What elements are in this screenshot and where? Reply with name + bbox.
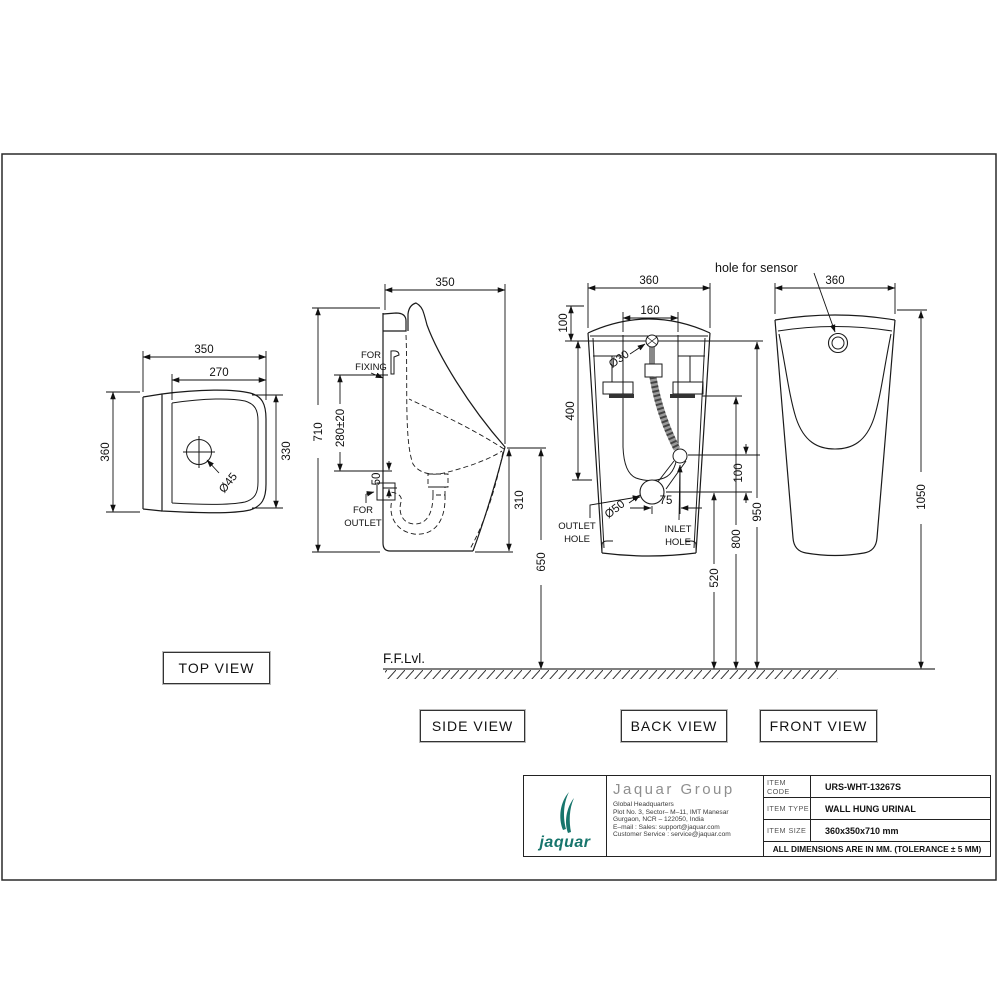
dim-back-sensor-hole: Ø30 (607, 348, 632, 370)
table-row: ITEM TYPE WALL HUNG URINAL (764, 798, 990, 820)
back-crown (588, 319, 710, 333)
left-bracket (603, 382, 633, 394)
side-hidden-lines (388, 335, 504, 549)
left-bracket-pad (609, 394, 634, 398)
address-line: Global Headquarters (613, 801, 763, 809)
front-top-edge (775, 315, 895, 320)
fixing-hook (391, 351, 399, 374)
company-name: Jaquar Group (613, 781, 763, 798)
back-view-label-text: BACK VIEW (631, 718, 718, 734)
jaquar-logo-wordmark: jaquar (539, 834, 590, 852)
note-inlet-hole-1: INLET (665, 524, 692, 535)
dim-front-width: 360 (825, 275, 844, 287)
item-info-table: ITEM CODE URS-WHT-13267S ITEM TYPE WALL … (764, 776, 990, 856)
back-view-label: BACK VIEW (621, 710, 727, 742)
dim-top-width: 350 (194, 344, 213, 356)
note-inlet-hole-2: HOLE (665, 537, 691, 548)
dim-back-crown-offset: 100 (558, 313, 570, 332)
item-code-label: ITEM CODE (764, 776, 811, 797)
dim-back-outlet-hole: Ø50 (603, 498, 628, 521)
front-view-dimensions (775, 273, 927, 669)
title-block: jaquar Jaquar Group Global Headquarters … (523, 775, 991, 857)
side-profile (408, 303, 505, 551)
front-view-label: FRONT VIEW (760, 710, 877, 742)
front-bowl-rim (779, 334, 891, 449)
dim-top-inner-width: 270 (209, 367, 228, 379)
address-line: Plot No. 3, Sector– M–11, IMT Manesar (613, 809, 763, 817)
item-type-value: WALL HUNG URINAL (811, 798, 990, 819)
side-view-dimensions (312, 284, 546, 669)
side-view-label-text: SIDE VIEW (432, 718, 513, 734)
note-for-outlet-1: FOR (353, 505, 373, 516)
drawing-sheet: 350 270 360 330 Ø45 (0, 0, 1000, 1000)
dim-back-outlet-height: 520 (709, 568, 721, 587)
top-view-label-text: TOP VIEW (179, 660, 255, 676)
dim-side-fixing-drop: 280±20 (335, 409, 347, 447)
item-size-label: ITEM SIZE (764, 820, 811, 841)
floor-line: F.F.Lvl. (383, 651, 935, 679)
right-bracket-pad (670, 394, 695, 398)
dim-back-bracket-height: 800 (731, 529, 743, 548)
dim-side-outlet-drop: 50 (371, 473, 383, 486)
side-wall-and-bottom (383, 313, 473, 551)
back-bottom (602, 553, 696, 556)
top-view (143, 390, 266, 513)
dim-top-inner-depth: 330 (281, 441, 293, 460)
address-line: Customer Service : service@jaquar.com (613, 831, 763, 839)
dim-side-rim-depth: 310 (514, 490, 526, 509)
brand-logo-cell: jaquar (524, 776, 607, 856)
sensor-hole-front-inner (832, 337, 844, 349)
side-view-label: SIDE VIEW (420, 710, 525, 742)
note-for-fixing-2: FIXING (355, 362, 387, 373)
dim-back-width: 360 (639, 275, 658, 287)
address-line: E–mail : Sales: support@jaquar.com (613, 824, 763, 832)
item-size-value: 360x350x710 mm (811, 820, 990, 841)
dim-side-width: 350 (435, 277, 454, 289)
table-row: ITEM SIZE 360x350x710 mm (764, 820, 990, 842)
dim-back-inlet-offset: 100 (733, 463, 745, 482)
table-row: ITEM CODE URS-WHT-13267S (764, 776, 990, 798)
note-hole-for-sensor: hole for sensor (715, 261, 798, 275)
company-address-cell: Jaquar Group Global Headquarters Plot No… (607, 776, 764, 856)
dim-side-rim-height: 650 (536, 552, 548, 571)
note-for-fixing-1: FOR (361, 350, 381, 361)
note-for-outlet-2: OUTLET (344, 518, 382, 529)
front-view-label-text: FRONT VIEW (770, 718, 868, 734)
dim-top-depth: 360 (100, 442, 112, 461)
dim-back-hole-spacing: 75 (660, 495, 673, 507)
dim-back-fixing-span: 160 (640, 305, 659, 317)
dim-top-drain: Ø45 (217, 471, 240, 496)
sheet-border (2, 154, 996, 880)
dim-side-height: 710 (313, 422, 325, 441)
side-top-lip (383, 313, 406, 331)
top-view-dimensions (106, 351, 283, 512)
address-line: Gurgaon, NCR – 122050, India (613, 816, 763, 824)
dim-back-sensor-height: 950 (752, 502, 764, 521)
floor-level-label: F.F.Lvl. (383, 651, 425, 666)
front-body (775, 320, 895, 556)
item-type-label: ITEM TYPE (764, 798, 811, 819)
dim-front-total-height: 1050 (916, 484, 928, 510)
front-view (775, 315, 895, 556)
hose-connector (645, 364, 662, 377)
dim-back-bracket-drop: 400 (565, 401, 577, 420)
sensor-hole-front-outer (829, 334, 848, 353)
top-view-outline (162, 390, 266, 513)
inlet-hole (673, 449, 687, 463)
note-outlet-hole-1: OUTLET (558, 521, 596, 532)
floor-hatching (385, 670, 838, 679)
top-view-flange (143, 394, 162, 511)
item-code-value: URS-WHT-13267S (811, 776, 990, 797)
tolerance-note: ALL DIMENSIONS ARE IN MM. (TOLERANCE ± 5… (764, 842, 990, 856)
jaquar-logo-icon (550, 790, 580, 834)
top-view-label: TOP VIEW (163, 652, 270, 684)
side-view (377, 303, 505, 551)
note-outlet-hole-2: HOLE (564, 534, 590, 545)
